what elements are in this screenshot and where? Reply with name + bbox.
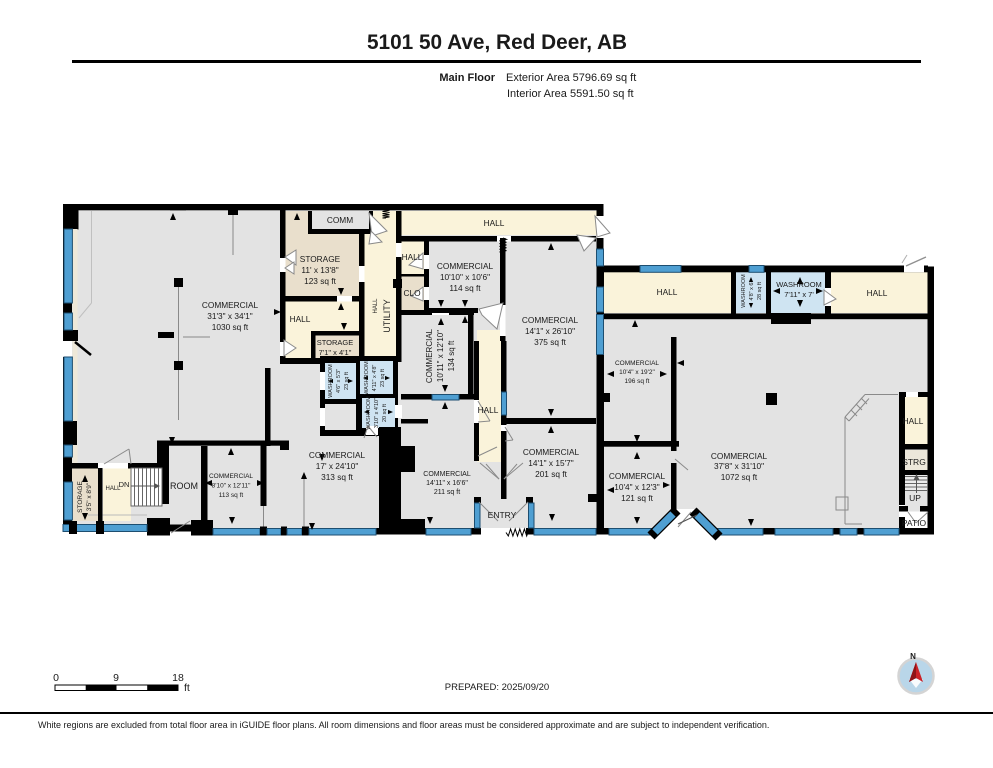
svg-text:14'1" x 15'7": 14'1" x 15'7" (528, 458, 574, 468)
svg-text:201 sq ft: 201 sq ft (535, 469, 568, 479)
svg-text:375 sq ft: 375 sq ft (534, 337, 567, 347)
svg-text:WASHROOM: WASHROOM (366, 396, 372, 430)
svg-text:20 sq ft: 20 sq ft (382, 404, 388, 423)
svg-text:STORAGE: STORAGE (300, 254, 341, 264)
svg-text:Main Floor: Main Floor (439, 72, 495, 84)
svg-text:10'11" x 12'10": 10'11" x 12'10" (436, 330, 445, 382)
svg-text:HALL: HALL (484, 218, 505, 228)
svg-text:313 sq ft: 313 sq ft (321, 472, 354, 482)
svg-text:STORAGE: STORAGE (317, 338, 354, 347)
svg-text:14'1" x 26'10": 14'1" x 26'10" (525, 326, 575, 336)
svg-text:121 sq ft: 121 sq ft (621, 493, 654, 503)
svg-text:STRG: STRG (902, 457, 926, 467)
svg-text:18: 18 (172, 672, 184, 684)
svg-text:134 sq ft: 134 sq ft (447, 340, 456, 371)
svg-text:11' x 13'8": 11' x 13'8" (301, 265, 338, 275)
svg-text:14'11" x 16'6": 14'11" x 16'6" (426, 480, 468, 487)
svg-text:0: 0 (53, 672, 59, 684)
svg-text:COMMERCIAL: COMMERCIAL (522, 315, 579, 325)
svg-text:10'10" x 10'6": 10'10" x 10'6" (440, 272, 490, 282)
svg-text:COMMERCIAL: COMMERCIAL (437, 261, 494, 271)
svg-text:COMMERCIAL: COMMERCIAL (209, 473, 253, 480)
svg-text:COMMERCIAL: COMMERCIAL (202, 300, 259, 310)
svg-text:1030 sq ft: 1030 sq ft (212, 322, 249, 332)
svg-text:WASHROOM: WASHROOM (328, 364, 334, 398)
svg-text:COMMERCIAL: COMMERCIAL (423, 471, 471, 478)
svg-text:HALL: HALL (478, 405, 499, 415)
svg-text:10'4" x 12'3": 10'4" x 12'3" (614, 482, 660, 492)
svg-text:HALL: HALL (373, 298, 379, 314)
svg-text:COMMERCIAL: COMMERCIAL (425, 328, 434, 383)
svg-text:17' x 24'10": 17' x 24'10" (316, 461, 359, 471)
svg-text:DN: DN (119, 480, 130, 489)
svg-text:PATIO: PATIO (902, 518, 927, 528)
svg-text:4'11" x 4'8": 4'11" x 4'8" (372, 365, 378, 392)
svg-text:123 sq ft: 123 sq ft (304, 276, 337, 286)
svg-text:COMMERCIAL: COMMERCIAL (615, 360, 659, 367)
svg-text:UP: UP (909, 493, 921, 503)
svg-text:COMMERCIAL: COMMERCIAL (309, 450, 366, 460)
svg-text:CLO: CLO (403, 288, 421, 298)
svg-text:37'8" x 31'10": 37'8" x 31'10" (714, 461, 764, 471)
svg-text:3'5" x 8'9": 3'5" x 8'9" (86, 482, 93, 511)
svg-text:3'10" x 4'10": 3'10" x 4'10" (374, 398, 380, 428)
svg-text:WASHROOM: WASHROOM (776, 280, 822, 289)
svg-text:HALL: HALL (290, 314, 311, 324)
svg-text:HALL: HALL (657, 287, 678, 297)
svg-text:9: 9 (113, 672, 119, 684)
svg-text:4'8" x 6': 4'8" x 6' (749, 281, 755, 300)
svg-text:114 sq ft: 114 sq ft (449, 283, 481, 293)
svg-text:N: N (910, 652, 916, 661)
svg-text:113 sq ft: 113 sq ft (219, 492, 244, 499)
svg-text:31'3" x 34'1": 31'3" x 34'1" (207, 311, 253, 321)
svg-text:10'4" x 19'2": 10'4" x 19'2" (619, 369, 655, 376)
svg-text:WASHROOM: WASHROOM (364, 361, 370, 395)
svg-text:COMMERCIAL: COMMERCIAL (711, 451, 768, 461)
svg-text:ENTRY: ENTRY (488, 510, 517, 520)
svg-text:COMMERCIAL: COMMERCIAL (609, 471, 666, 481)
svg-text:HALL: HALL (402, 252, 423, 262)
svg-text:4'6" x 5'3": 4'6" x 5'3" (336, 369, 342, 393)
svg-text:Exterior Area 5796.69 sq ft: Exterior Area 5796.69 sq ft (506, 72, 636, 84)
svg-text:White regions are excluded fro: White regions are excluded from total fl… (38, 720, 769, 730)
svg-text:211 sq ft: 211 sq ft (434, 489, 460, 496)
svg-text:23 sq ft: 23 sq ft (344, 372, 350, 391)
svg-text:HALL: HALL (867, 288, 888, 298)
svg-text:WASHROOM: WASHROOM (741, 274, 747, 308)
svg-text:COMM: COMM (327, 215, 353, 225)
svg-text:ROOM: ROOM (170, 481, 198, 491)
svg-text:HALL: HALL (903, 416, 924, 426)
svg-text:1072 sq ft: 1072 sq ft (721, 472, 758, 482)
svg-text:PREPARED: 2025/09/20: PREPARED: 2025/09/20 (445, 682, 549, 693)
svg-text:5101 50 Ave, Red Deer, AB: 5101 50 Ave, Red Deer, AB (367, 31, 627, 54)
svg-text:UTILITY: UTILITY (382, 299, 392, 333)
svg-text:7'1" x 4'1": 7'1" x 4'1" (319, 348, 352, 357)
svg-text:Interior Area 5591.50 sq ft: Interior Area 5591.50 sq ft (507, 88, 634, 100)
svg-text:STORAGE: STORAGE (77, 481, 84, 513)
svg-text:8'10" x 12'11": 8'10" x 12'11" (212, 483, 251, 490)
svg-text:23 sq ft: 23 sq ft (380, 369, 386, 388)
svg-text:ft: ft (184, 682, 190, 694)
svg-text:COMMERCIAL: COMMERCIAL (523, 447, 580, 457)
svg-text:7'11" x 7': 7'11" x 7' (784, 290, 814, 299)
svg-text:28 sq ft: 28 sq ft (757, 282, 763, 301)
svg-text:196 sq ft: 196 sq ft (625, 378, 650, 385)
